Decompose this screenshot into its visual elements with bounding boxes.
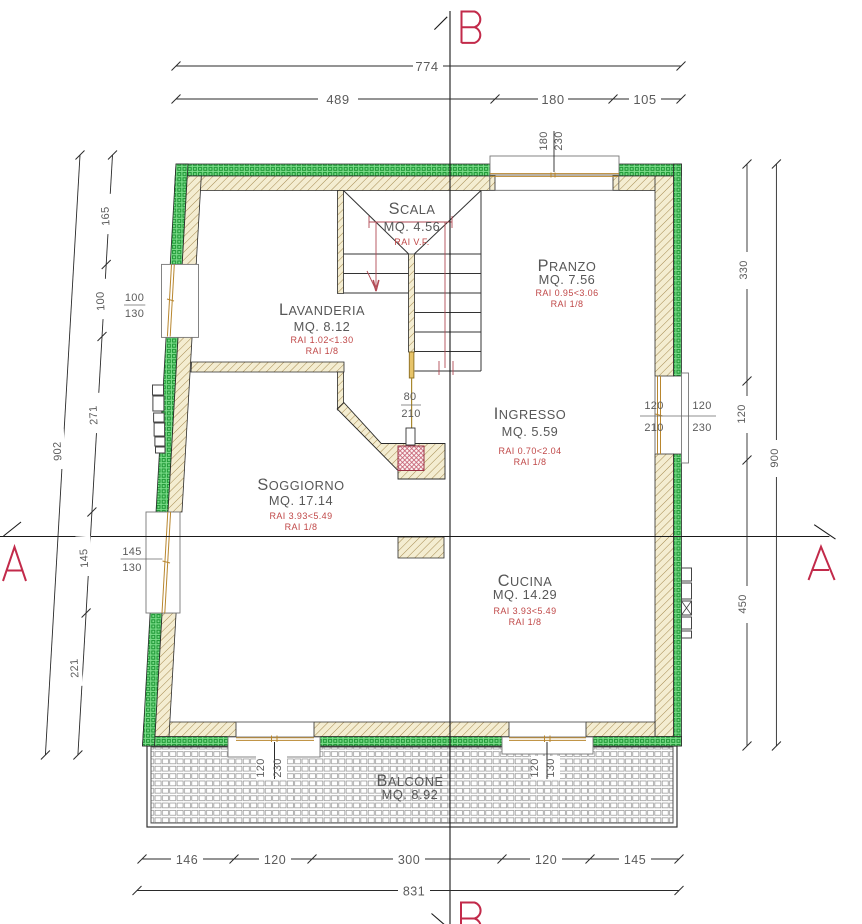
svg-text:180: 180: [538, 131, 550, 150]
svg-text:130: 130: [122, 562, 141, 574]
svg-text:902: 902: [51, 441, 64, 461]
svg-text:RAI 1/8: RAI 1/8: [306, 346, 339, 356]
svg-text:120: 120: [535, 853, 557, 867]
svg-text:230: 230: [692, 422, 711, 434]
svg-text:100: 100: [125, 292, 144, 304]
svg-text:RAI 1/8: RAI 1/8: [514, 457, 547, 467]
svg-text:105: 105: [633, 92, 656, 107]
svg-text:221: 221: [68, 658, 81, 678]
svg-text:900: 900: [769, 448, 781, 467]
svg-text:230: 230: [272, 758, 284, 777]
svg-text:130: 130: [125, 308, 144, 320]
svg-text:MQ. 8.92: MQ. 8.92: [382, 787, 439, 802]
svg-text:MQ. 5.59: MQ. 5.59: [502, 424, 559, 439]
svg-text:RAI 1/8: RAI 1/8: [285, 522, 318, 532]
svg-text:RAI 1.02<1.30: RAI 1.02<1.30: [291, 335, 354, 345]
svg-text:RAI 3.93<5.49: RAI 3.93<5.49: [494, 606, 557, 616]
svg-text:450: 450: [737, 594, 749, 613]
svg-text:RAI 1/8: RAI 1/8: [509, 617, 542, 627]
svg-text:80: 80: [404, 391, 417, 403]
svg-text:271: 271: [87, 405, 100, 425]
svg-text:330: 330: [738, 260, 750, 279]
svg-text:120: 120: [644, 400, 663, 412]
svg-text:SCALA: SCALA: [389, 200, 436, 218]
svg-text:146: 146: [176, 853, 198, 867]
svg-text:774: 774: [415, 59, 438, 74]
svg-text:145: 145: [624, 853, 646, 867]
svg-text:230: 230: [553, 131, 565, 150]
svg-text:RAI 0.95<3.06: RAI 0.95<3.06: [536, 288, 599, 298]
svg-text:MQ. 7.56: MQ. 7.56: [539, 272, 596, 287]
svg-text:LAVANDERIA: LAVANDERIA: [279, 301, 365, 319]
svg-text:RAI 3.93<5.49: RAI 3.93<5.49: [270, 511, 333, 521]
svg-text:210: 210: [401, 408, 420, 420]
svg-text:120: 120: [692, 400, 711, 412]
svg-text:MQ. 8.12: MQ. 8.12: [294, 319, 351, 334]
svg-text:300: 300: [398, 853, 420, 867]
svg-text:489: 489: [326, 92, 349, 107]
svg-text:120: 120: [529, 758, 541, 777]
svg-text:100: 100: [94, 291, 107, 311]
svg-text:SOGGIORNO: SOGGIORNO: [257, 476, 344, 494]
svg-text:MQ. 17.14: MQ. 17.14: [269, 493, 333, 508]
svg-text:RAI V.F.: RAI V.F.: [394, 237, 429, 247]
svg-text:210: 210: [644, 422, 663, 434]
svg-text:RAI 0.70<2.04: RAI 0.70<2.04: [499, 446, 562, 456]
svg-text:120: 120: [255, 758, 267, 777]
svg-text:RAI 1/8: RAI 1/8: [551, 299, 584, 309]
svg-text:180: 180: [541, 92, 564, 107]
svg-text:165: 165: [99, 206, 112, 226]
svg-text:INGRESSO: INGRESSO: [494, 405, 567, 423]
svg-text:145: 145: [78, 548, 91, 568]
svg-text:MQ. 4.56: MQ. 4.56: [384, 219, 441, 234]
svg-text:145: 145: [122, 546, 141, 558]
svg-text:130: 130: [545, 758, 557, 777]
svg-text:120: 120: [736, 404, 748, 423]
svg-text:120: 120: [264, 853, 286, 867]
svg-text:MQ. 14.29: MQ. 14.29: [493, 587, 557, 602]
svg-text:831: 831: [403, 885, 425, 899]
